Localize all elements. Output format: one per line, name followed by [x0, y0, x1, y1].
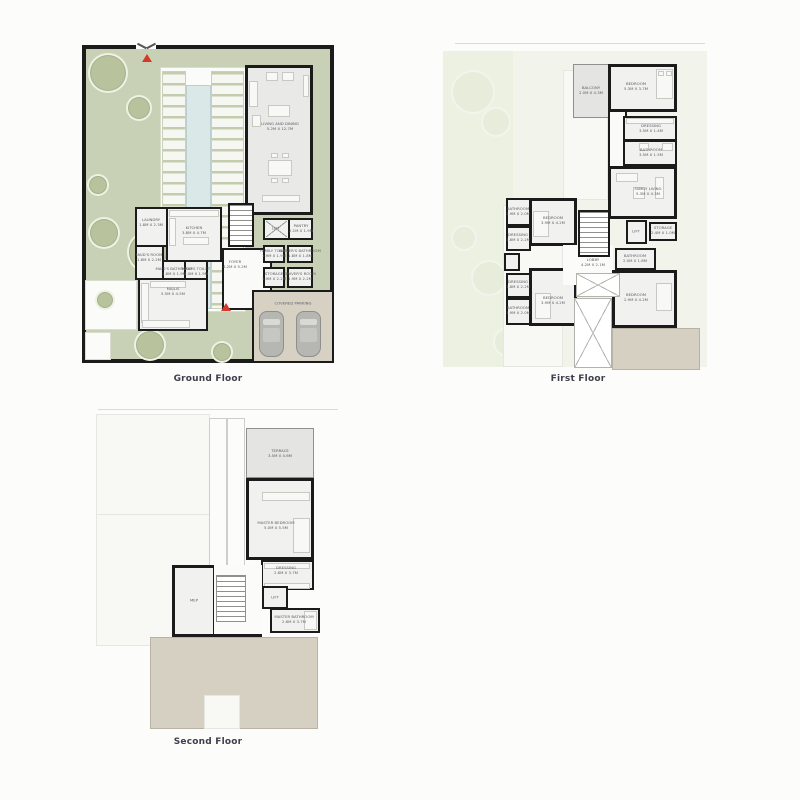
room-dims: 5.5M X 4.5M	[161, 292, 185, 297]
room-label-maids-room: MAID'S ROOM 1.8M X 2.2M	[136, 253, 163, 263]
void-skylight	[576, 273, 620, 297]
room-label-kitchen: KITCHEN 3.8M X 4.7M	[182, 226, 206, 236]
room-dims: 2.4M X 1.0M	[651, 231, 675, 236]
room-label-terrace: TERRACE 3.5M X 4.6M	[268, 449, 292, 459]
kitchen-island	[183, 237, 209, 245]
tree-icon	[451, 225, 477, 251]
tree-icon	[95, 290, 115, 310]
ground-floor-caption: Ground Floor	[174, 374, 243, 384]
room-dims: 1.8M X 2.2M	[506, 238, 530, 243]
room-dims: 1.8M X 1.8M	[279, 254, 321, 259]
room-label-bedroom-right: BEDROOM 2.9M X 4.2M	[624, 293, 648, 303]
room-dims: 5.3M X 3.7M	[624, 87, 648, 92]
tree-icon	[87, 174, 109, 196]
terrace-roof	[612, 328, 700, 370]
room-label-family-living: FAMILY LIVING 5.3M X 4.3M	[634, 187, 661, 197]
bed	[293, 518, 310, 553]
first-floor-caption: First Floor	[551, 374, 606, 384]
armchair	[266, 72, 278, 81]
room-label-dressing: DRESSING 2.8M X 3.7M	[274, 566, 298, 576]
room-label-storage: STORAGE 1.9M X 2.2M	[262, 272, 286, 282]
room-label-drivers-room: DRIVER'S ROOM 1.9M X 2.2M	[284, 272, 315, 282]
room-name: LIFT	[272, 226, 280, 231]
armchair	[252, 115, 261, 127]
room-dims: 2.8M X 3.7M	[274, 571, 298, 576]
room-name: MEP	[190, 598, 198, 603]
room-label-bedroom-top: BEDROOM 5.3M X 3.7M	[624, 82, 648, 92]
room-dims: 2.0M X 1.8M	[623, 259, 647, 264]
room-label-storage: STORAGE 2.4M X 1.0M	[651, 226, 675, 236]
room-name: COVERED PARKING	[275, 301, 312, 306]
buffet	[262, 195, 300, 202]
room-dims: 3.9M X 4.2M	[541, 221, 565, 226]
room-dims: 2.9M X 4.2M	[624, 298, 648, 303]
room-label-parking: COVERED PARKING	[275, 301, 312, 306]
patio	[85, 332, 111, 360]
tree-icon	[88, 53, 128, 93]
room-dims: 3.5M X 1.5M	[639, 153, 663, 158]
coffee-table	[268, 105, 290, 117]
pillow	[666, 71, 672, 76]
sofa	[142, 320, 190, 328]
room-label-drivers-bathroom: DRIVER'S BATHROOM 1.8M X 1.8M	[279, 249, 321, 259]
room-label-dressing-top: DRESSING 3.5M X 1.4M	[639, 124, 663, 134]
room-name: LIFT	[271, 595, 279, 600]
tree-icon	[134, 329, 166, 361]
chair	[282, 153, 289, 158]
room-dims: 1.8M X 2.2M	[506, 285, 530, 290]
room-dims: 3.8M X 4.7M	[182, 231, 206, 236]
sofa	[141, 283, 149, 323]
room-label-bedroom-left-bottom: BEDROOM 3.9M X 4.2M	[541, 296, 565, 306]
room-label-lift: LIFT	[271, 595, 279, 600]
tree-icon	[126, 95, 152, 121]
wardrobe	[262, 492, 310, 501]
bed	[656, 283, 672, 311]
room-label-bathroom-left-top: BATHROOM 1.9M X 2.0M	[506, 207, 530, 217]
room-label-lift: LIFT	[632, 229, 640, 234]
kitchen-counter	[169, 218, 176, 246]
room-dims: 4.2M X 2.1M	[581, 263, 605, 268]
room-dims: 2.0M X 4.3M	[579, 91, 603, 96]
room-label-foyer: FOYER 4.2M X 5.2M	[223, 260, 247, 270]
room-dims: 2.1M X 1.9M	[289, 229, 313, 234]
tree-icon	[451, 70, 495, 114]
room-label-maids-toilet: MAID'S TOILET 1.0M X 1.9M	[182, 267, 210, 277]
armchair	[282, 72, 294, 81]
room-dims: 1.9M X 2.2M	[262, 277, 286, 282]
entrance-marker-icon	[221, 303, 231, 311]
second-floor-plan: TERRACE 3.5M X 4.6M MASTER BEDROOM 5.0M …	[90, 408, 350, 742]
staircase	[578, 210, 610, 257]
room-label-dressing-left-bottom: DRESSING 1.8M X 2.2M	[506, 280, 530, 290]
room-label-bathroom-top: BATHROOM 3.5M X 1.5M	[639, 148, 663, 158]
room-label-bathroom-right: BATHROOM 2.0M X 1.8M	[623, 254, 647, 264]
terrace-inset	[204, 695, 240, 729]
room-dims: 5.0M X 5.5M	[257, 526, 294, 531]
tree-icon	[471, 260, 507, 296]
room-label-bathroom-left-bottom: BATHROOM 1.9M X 2.0M	[506, 306, 530, 316]
room-dims: 3.9M X 4.2M	[541, 301, 565, 306]
room-label-balcony: BALCONY 2.0M X 4.3M	[579, 86, 603, 96]
room-dims: 5.2M X 12.7M	[261, 127, 299, 132]
room-label-master-bathroom: MASTER BATHROOM 2.8M X 3.7M	[274, 615, 313, 625]
car-icon	[296, 311, 321, 357]
outline-line	[96, 514, 210, 515]
room-label-mep: MEP	[190, 598, 198, 603]
room-dims: 5.3M X 4.3M	[634, 192, 661, 197]
room-label-master-bedroom: MASTER BEDROOM 5.0M X 5.5M	[257, 521, 294, 531]
floorplan-sheet: { "colors": { "garden_green": "#c8d1b5",…	[0, 0, 800, 800]
chair	[282, 178, 289, 183]
room-dims: 1.9M X 2.0M	[506, 311, 530, 316]
room-dims: 1.8M X 2.2M	[136, 258, 163, 263]
shaft	[504, 253, 520, 271]
room-dims: 1.9M X 2.2M	[284, 277, 315, 282]
dining-table	[268, 160, 292, 176]
sofa	[249, 81, 258, 107]
room-dims: 3.5M X 1.4M	[639, 129, 663, 134]
room-label-laundry: LAUNDRY 1.8M X 2.3M	[139, 218, 163, 228]
room-dims: 1.0M X 1.9M	[182, 272, 210, 277]
second-floor-caption: Second Floor	[174, 737, 243, 747]
chair	[271, 153, 278, 158]
room-label-majlis: MAJLIS 5.5M X 4.5M	[161, 287, 185, 297]
room-dims: 3.5M X 4.6M	[268, 454, 292, 459]
kitchen-counter	[169, 210, 219, 217]
site-line	[98, 409, 338, 410]
room-name: LIFT	[632, 229, 640, 234]
site-line	[455, 43, 705, 44]
chair	[271, 178, 278, 183]
room-label-bedroom-left-top: BEDROOM 3.9M X 4.2M	[541, 216, 565, 226]
room-label-lobby: LOBBY 4.2M X 2.1M	[581, 258, 605, 268]
staircase	[228, 203, 254, 247]
pillow	[658, 71, 664, 76]
tv-unit	[303, 75, 309, 97]
car-icon	[259, 311, 284, 357]
ground-floor-plan: LIVING AND DINING 5.2M X 12.7M LAUNDRY 1…	[82, 45, 336, 365]
sofa	[616, 173, 638, 182]
void-skylight	[574, 298, 612, 368]
room-label-living-dining: LIVING AND DINING 5.2M X 12.7M	[261, 122, 299, 132]
entrance-marker-icon	[142, 54, 152, 62]
room-dims: 2.8M X 3.7M	[274, 620, 313, 625]
tree-icon	[211, 341, 233, 363]
room-dims: 4.2M X 5.2M	[223, 265, 247, 270]
room-label-pantry: PANTRY 2.1M X 1.9M	[289, 224, 313, 234]
tree-icon	[481, 107, 511, 137]
room-label-dressing-left-top: DRESSING 1.8M X 2.2M	[506, 233, 530, 243]
room-label-lift: LIFT	[272, 226, 280, 231]
staircase	[216, 575, 246, 622]
room-dims: 1.9M X 2.0M	[506, 212, 530, 217]
tree-icon	[88, 217, 120, 249]
wc	[662, 143, 673, 151]
first-floor-plan: BALCONY 2.0M X 4.3M BEDROOM 5.3M X 3.7M …	[443, 45, 720, 375]
room-dims: 1.8M X 2.3M	[139, 223, 163, 228]
